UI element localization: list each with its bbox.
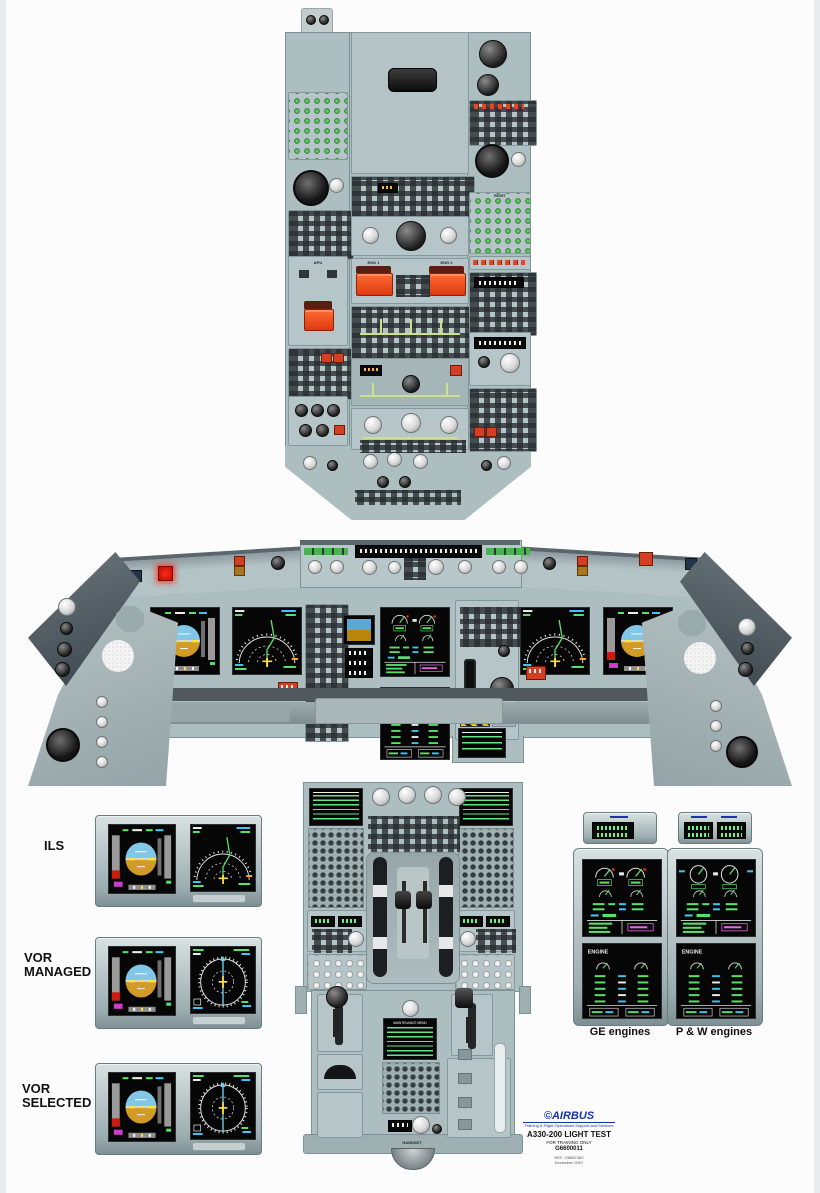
elec-flow-line — [446, 383, 448, 395]
speedbrake-lever-stem[interactable] — [333, 1009, 339, 1037]
speaker-grille-icon — [102, 640, 134, 672]
vor-managed-line1: VOR — [24, 951, 91, 965]
brand-tagline: Training & Flight Operations Support and… — [523, 1122, 615, 1128]
hydraulic-flow-line — [440, 319, 442, 333]
efis-right-knob[interactable] — [492, 560, 506, 574]
console-knob[interactable] — [96, 756, 108, 768]
printer-paper-slot — [494, 1043, 506, 1133]
air-cond-line — [362, 437, 458, 439]
vor-managed-example-bezel — [95, 937, 262, 1029]
rail-white-band — [439, 885, 453, 897]
rmp-keys[interactable] — [312, 929, 352, 953]
pedestal-ear — [295, 986, 307, 1014]
captain-mcdu-keyboard[interactable] — [308, 828, 364, 908]
overhead-pushbutton-grid[interactable] — [288, 92, 348, 160]
fire-test-switches[interactable] — [396, 275, 430, 297]
fcu-speed-knob[interactable] — [362, 560, 377, 575]
handset[interactable] — [391, 1148, 435, 1170]
caution-amber-light[interactable] — [234, 566, 245, 576]
rotary-knob[interactable] — [327, 404, 340, 417]
hydraulic-flow-line — [380, 319, 382, 333]
rmp-keys[interactable] — [476, 929, 516, 953]
speaker-grille-icon — [684, 642, 716, 674]
ecam-knob[interactable] — [448, 788, 466, 806]
pw-engine-page-screen — [676, 943, 756, 1019]
dcdu-title-line — [462, 732, 502, 734]
lighting-knob[interactable] — [387, 452, 402, 467]
maintenance-screen-title: MAINTENANCE MENU — [384, 1021, 436, 1025]
fuel-readout-display — [717, 822, 746, 839]
ge-engine-page-screen — [582, 943, 662, 1019]
rmp-standby-frequency — [486, 916, 510, 927]
master-caution-light[interactable] — [234, 556, 245, 566]
eng1-fire-handle-cap — [356, 266, 391, 273]
glareshield-knob[interactable] — [271, 556, 285, 570]
cockpit-poster: APU ENG 1 — [0, 0, 820, 1193]
dome-knob[interactable] — [477, 74, 499, 96]
title-block: ©AIRBUS Training & Flight Operations Sup… — [513, 1110, 625, 1165]
engine-fire-panel: ENG 1 ENG 2 — [351, 258, 469, 304]
ecam-system-buttons[interactable] — [368, 816, 460, 852]
handset-label: HANDSET — [390, 1140, 434, 1145]
elec-display — [360, 365, 382, 376]
apu-fire-panel: APU — [288, 256, 348, 346]
maintenance-mcdu-keyboard[interactable] — [382, 1062, 440, 1114]
oxygen-mask-stowage — [46, 728, 80, 762]
electrical-panel — [351, 358, 469, 406]
standby-display — [345, 668, 373, 678]
lighting-knob[interactable] — [303, 456, 317, 470]
side-console-knob[interactable] — [741, 642, 754, 655]
oxygen-mask-stowage — [726, 736, 758, 768]
fcu-display — [355, 545, 482, 558]
overhead-lower-trapezoid — [285, 446, 531, 520]
ils-example-bezel — [95, 815, 262, 907]
captain-rmp-panel — [307, 910, 367, 952]
bezel-handle — [192, 1016, 246, 1025]
panel-lower-rail-segment — [315, 698, 503, 724]
loudspeaker-icon — [293, 170, 329, 206]
vor-selected-line2: SELECTED — [22, 1096, 91, 1110]
airbus-wordmark: AIRBUS — [552, 1110, 594, 1122]
switch-row[interactable] — [355, 490, 461, 505]
console-knob[interactable] — [710, 740, 722, 752]
elec-rotary-knob[interactable] — [402, 375, 420, 393]
console-knob[interactable] — [710, 720, 722, 732]
guarded-red-switch[interactable] — [334, 425, 345, 435]
printer-key[interactable] — [458, 1049, 472, 1060]
vor-managed-nd-screen — [190, 946, 256, 1014]
isis-standby-display — [343, 615, 375, 645]
rail-white-band — [439, 937, 453, 949]
speaker-volume-knob[interactable] — [511, 152, 526, 167]
flap-rail[interactable] — [439, 857, 453, 977]
reset-pushbutton-grid[interactable]: RESET — [469, 192, 531, 254]
anti-skid-switch[interactable] — [498, 645, 510, 657]
printer-panel — [447, 1058, 511, 1138]
printer-key[interactable] — [458, 1119, 472, 1130]
airbus-brand: ©AIRBUS — [513, 1110, 625, 1122]
overhead-switch-panel[interactable] — [469, 272, 537, 336]
ewd-display — [380, 607, 450, 677]
air-cond-panel — [351, 408, 469, 450]
efis-left-buttons[interactable] — [304, 548, 348, 555]
air-cond-switches[interactable] — [360, 440, 466, 453]
console-knob[interactable] — [96, 716, 108, 728]
console-knob[interactable] — [96, 696, 108, 708]
fcu-ap-buttons[interactable] — [404, 558, 426, 580]
rotary-knob[interactable] — [311, 404, 324, 417]
efis-right-knob[interactable] — [514, 560, 528, 574]
thrust-lever-1-handle[interactable] — [395, 891, 411, 909]
pedestal-digital-readout — [388, 1120, 412, 1132]
bezel-handle — [192, 1142, 246, 1151]
master-warning-light[interactable] — [639, 552, 653, 566]
mcdu-title-line — [313, 792, 359, 794]
captain-mcdu-screen — [309, 788, 363, 826]
rmp-tuning-knob[interactable] — [348, 931, 364, 947]
pedestal-knob[interactable] — [432, 1124, 442, 1134]
apu-label: APU — [289, 260, 347, 265]
ils-label: ILS — [44, 838, 64, 853]
elec-flow-line — [372, 383, 374, 395]
hydraulic-flow-line — [410, 319, 412, 333]
fo-nd-display — [520, 607, 590, 675]
bezel-handle — [192, 894, 246, 903]
poster-left-edge — [0, 0, 6, 1193]
eng2-fire-handle-cap — [429, 266, 464, 273]
pedestal-ear — [519, 986, 531, 1014]
eng1-fire-handle[interactable] — [356, 273, 393, 296]
rotary-knob[interactable] — [299, 424, 312, 437]
eng1-label: ENG 1 — [356, 260, 391, 265]
pw-ewd-screen — [676, 859, 756, 937]
elec-flow-line — [360, 395, 460, 397]
overhead-switch-panel[interactable] — [288, 210, 354, 260]
pw-engines-label: P & W engines — [667, 1026, 761, 1038]
air-cond-knob[interactable] — [364, 416, 382, 434]
overhead-switch-panel[interactable] — [288, 348, 354, 400]
warning-light-strip — [474, 104, 524, 109]
rotary-knob[interactable] — [316, 424, 329, 437]
hydraulic-flow-line — [360, 333, 460, 335]
adirs-panel[interactable] — [351, 176, 475, 220]
doc-number: G6600011 — [513, 1146, 625, 1154]
vor-managed-pfd-screen — [108, 946, 176, 1016]
vor-selected-line1: VOR — [22, 1082, 91, 1096]
pedestal-knob[interactable] — [412, 1116, 430, 1134]
octagon-recess — [678, 610, 706, 636]
fcu-heading-knob[interactable] — [388, 561, 401, 574]
lighting-knob[interactable] — [377, 476, 389, 488]
apu-switch[interactable] — [327, 270, 337, 278]
side-console-knob[interactable] — [60, 622, 73, 635]
rmp-active-frequency — [311, 916, 335, 927]
mcdu-title-line — [463, 792, 509, 794]
rotary-knob[interactable] — [440, 227, 457, 244]
fcu-altitude-knob[interactable] — [428, 559, 444, 575]
panel-placard — [691, 816, 707, 818]
lighting-knob[interactable] — [413, 454, 428, 469]
thrust-quadrant — [366, 852, 460, 984]
fo-mcdu-keyboard[interactable] — [458, 828, 514, 908]
rotary-selector-knob[interactable] — [396, 221, 426, 251]
overhead-knob-panel — [469, 332, 531, 386]
fuel-readout-display — [592, 822, 634, 839]
rail-white-band — [373, 937, 387, 949]
dome-knob[interactable] — [479, 40, 507, 68]
rail-white-band — [373, 885, 387, 897]
reset-label: RESET — [470, 194, 530, 198]
console-knob[interactable] — [96, 736, 108, 748]
guarded-red-switch[interactable] — [474, 427, 485, 437]
overhead-top-knob-icon[interactable] — [306, 15, 316, 25]
eng2-label: ENG 2 — [429, 260, 464, 265]
ge-engines-label: GE engines — [573, 1026, 667, 1038]
overhead-top-connector — [301, 8, 333, 34]
isis-sky — [347, 619, 371, 630]
vor-selected-nd-screen — [190, 1072, 256, 1140]
fo-rmp-panel — [455, 910, 515, 952]
fo-audio-panel[interactable] — [455, 954, 515, 990]
standby-altimeter — [345, 648, 373, 658]
fcu-vs-knob[interactable] — [458, 560, 472, 574]
audio-jack[interactable] — [55, 662, 70, 677]
autobrake-buttons[interactable] — [460, 607, 520, 647]
lighting-knob[interactable] — [399, 476, 411, 488]
rmp-tuning-knob[interactable] — [460, 931, 476, 947]
rudder-trim-lever[interactable] — [324, 1065, 356, 1079]
pw-engines-bezel — [667, 848, 763, 1026]
lighting-knob[interactable] — [497, 456, 511, 470]
panel-placard — [721, 816, 737, 818]
overhead-panel: APU ENG 1 — [285, 8, 531, 520]
dcdu-display — [458, 728, 506, 758]
overhead-top-knob-icon[interactable] — [319, 15, 329, 25]
eng2-fire-handle[interactable] — [429, 273, 466, 296]
adirs-display — [378, 183, 398, 193]
ecam-knob[interactable] — [398, 786, 416, 804]
ecam-knob[interactable] — [372, 788, 390, 806]
speedbrake-lever-knob[interactable] — [326, 986, 348, 1008]
vor-selected-example-bezel — [95, 1063, 262, 1155]
vor-managed-line2: MANAGED — [24, 965, 91, 979]
apu-switch[interactable] — [299, 270, 309, 278]
master-warning-light[interactable] — [158, 566, 173, 581]
flap-lever-stem[interactable] — [466, 1017, 472, 1043]
overhead-knob-panel — [288, 396, 348, 446]
apu-fire-handle-cap — [304, 301, 332, 309]
captain-nd-display — [232, 607, 302, 675]
maintenance-mcdu-screen: MAINTENANCE MENU — [383, 1018, 437, 1060]
speedbrake-rail[interactable] — [373, 857, 387, 977]
ecam-knob[interactable] — [424, 786, 442, 804]
engine-readout-panel-pw — [678, 812, 752, 844]
guarded-red-switch[interactable] — [333, 353, 344, 363]
octagon-recess — [116, 606, 144, 632]
airbus-logo-icon: © — [544, 1110, 552, 1122]
vor-managed-label: VOR MANAGED — [24, 951, 91, 979]
thrust-lever-2-handle[interactable] — [416, 891, 432, 909]
apu-fire-handle[interactable] — [304, 309, 334, 331]
rotary-knob[interactable] — [295, 404, 308, 417]
poster-right-edge — [814, 0, 820, 1193]
annunciator-strip-panel — [469, 256, 531, 270]
efis-left-knob[interactable] — [330, 560, 344, 574]
loudspeaker-icon — [475, 144, 509, 178]
poster-title: A330-200 LIGHT TEST — [513, 1130, 625, 1140]
overhead-switch-panel[interactable] — [469, 100, 537, 146]
printer-key[interactable] — [458, 1073, 472, 1084]
vor-selected-pfd-screen — [108, 1072, 176, 1142]
guarded-red-switch[interactable] — [486, 427, 497, 437]
warning-light-strip — [473, 260, 525, 265]
audio-jack[interactable] — [738, 662, 753, 677]
rotary-knob[interactable] — [362, 227, 379, 244]
air-cond-knob[interactable] — [401, 413, 421, 433]
flap-lever-handle[interactable] — [455, 988, 473, 1008]
efis-left-knob[interactable] — [308, 560, 322, 574]
side-console-knob[interactable] — [58, 598, 76, 616]
rmp-active-frequency — [459, 916, 483, 927]
speaker-volume-knob[interactable] — [329, 178, 344, 193]
maintenance-screen-text — [387, 1027, 433, 1056]
guarded-red-switch[interactable] — [321, 353, 332, 363]
digital-window — [474, 337, 526, 349]
digital-window — [474, 277, 524, 288]
ils-pfd-screen — [108, 824, 176, 894]
overhead-knob-panel — [351, 216, 469, 256]
ils-nd-screen — [190, 824, 256, 892]
ge-engines-bezel — [573, 848, 669, 1026]
overhead-switch-panel[interactable] — [469, 388, 537, 452]
air-cond-knob[interactable] — [440, 416, 458, 434]
audio-jack[interactable] — [57, 642, 72, 657]
lighting-knob[interactable] — [481, 460, 492, 471]
console-knob[interactable] — [710, 700, 722, 712]
overhead-handle[interactable] — [388, 68, 437, 92]
rudder-trim-panel — [317, 1054, 363, 1090]
side-console-knob[interactable] — [738, 618, 756, 636]
mcdu-text — [463, 795, 509, 822]
fo-mcdu-screen — [459, 788, 513, 826]
rotary-knob[interactable] — [500, 353, 520, 373]
mcdu3-brightness-knob[interactable] — [402, 1000, 419, 1017]
engine-readout-panel-ge — [583, 812, 657, 844]
captain-audio-panel[interactable] — [307, 954, 367, 990]
master-caution-light[interactable] — [577, 556, 588, 566]
ge-ewd-screen — [582, 859, 662, 937]
dcdu-text — [462, 736, 502, 754]
lighting-knob[interactable] — [327, 460, 338, 471]
panel-placard — [610, 816, 628, 818]
fuel-readout-display — [684, 822, 713, 839]
overhead-blank-panel — [351, 32, 469, 174]
doc-date: December 2007 — [513, 1160, 625, 1165]
efis-right-buttons[interactable] — [486, 548, 530, 555]
caution-amber-light[interactable] — [577, 566, 588, 576]
printer-key[interactable] — [458, 1097, 472, 1108]
lighting-knob[interactable] — [363, 454, 378, 469]
red-placard — [526, 666, 546, 680]
mcdu-text — [313, 795, 359, 822]
standby-display — [345, 658, 373, 668]
landing-gear-lever[interactable] — [466, 661, 474, 689]
isis-ground — [347, 630, 371, 641]
glareshield-knob[interactable] — [543, 557, 556, 570]
hydraulic-panel[interactable] — [351, 306, 475, 362]
vor-selected-label: VOR SELECTED — [22, 1082, 91, 1110]
rotary-knob[interactable] — [478, 356, 490, 368]
rmp-standby-frequency — [338, 916, 362, 927]
pedestal-blank-panel — [317, 1092, 363, 1138]
guarded-red-switch[interactable] — [450, 365, 462, 376]
